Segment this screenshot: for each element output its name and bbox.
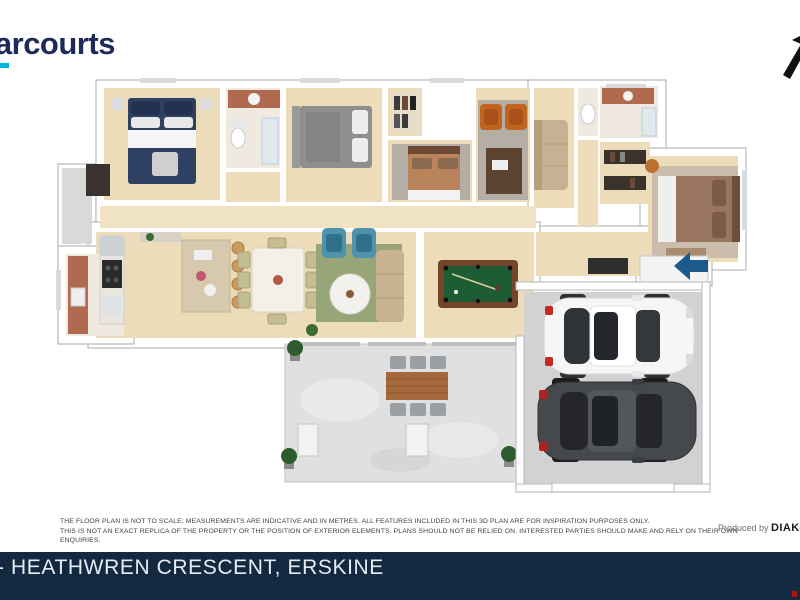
- disclaimer-line-1: THE FLOOR PLAN IS NOT TO SCALE; MEASUREM…: [60, 517, 740, 527]
- car-dark: [538, 378, 696, 463]
- car-white: [544, 294, 694, 378]
- credit-brand: DIAK: [771, 522, 800, 534]
- storage-bench: [588, 258, 628, 274]
- property-address: - HEATHWREN CRESCENT, ERSKINE: [0, 556, 384, 580]
- lounge: [534, 120, 568, 190]
- address-text: HEATHWREN CRESCENT, ERSKINE: [11, 556, 384, 579]
- living-area: [306, 228, 404, 336]
- laundry: [68, 256, 88, 334]
- floor-plan-3d: [0, 0, 800, 600]
- study-room: [478, 100, 528, 200]
- disclaimer-line-2: THIS IS NOT AN EXACT REPLICA OF THE PROP…: [60, 527, 740, 546]
- bedroom-gray-bed: [292, 106, 372, 168]
- page: Harcourts: [0, 0, 800, 600]
- credit-prefix: Produced by: [718, 523, 771, 533]
- entry-porch: [640, 252, 708, 282]
- disclaimer: THE FLOOR PLAN IS NOT TO SCALE; MEASUREM…: [60, 517, 740, 546]
- games-room-pool-table: [438, 260, 518, 308]
- master-bedroom: [645, 159, 740, 258]
- bedroom-tan-bed: [392, 144, 470, 200]
- producer-credit: Produced by DIAK: [718, 522, 800, 534]
- address-fragment: -: [0, 556, 5, 579]
- footer-address-bar: - HEATHWREN CRESCENT, ERSKINE: [0, 552, 800, 600]
- red-corner-fragment: [792, 591, 797, 597]
- walk-in-robe-1: [392, 92, 420, 132]
